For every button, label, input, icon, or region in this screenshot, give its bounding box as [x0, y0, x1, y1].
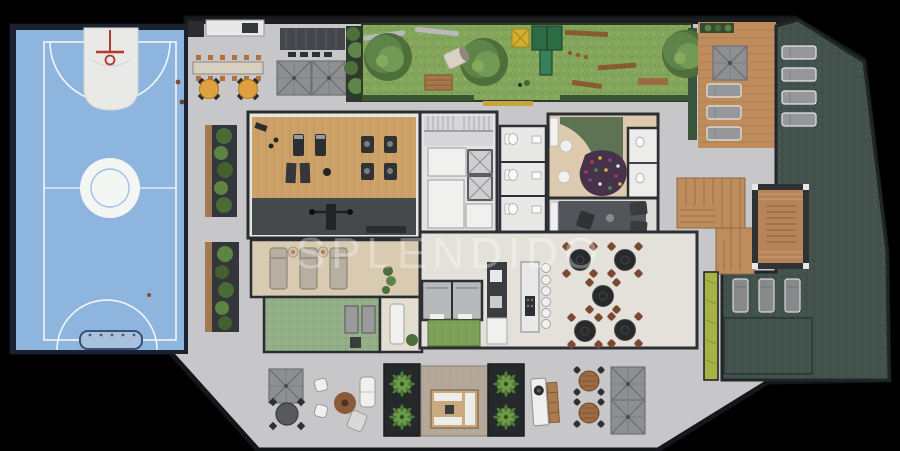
basketball-court — [10, 24, 188, 354]
armchair — [314, 404, 329, 419]
cafe-table — [237, 78, 259, 100]
tree — [460, 38, 508, 86]
sauna — [422, 281, 482, 320]
coffee-station — [188, 21, 204, 37]
indoor-garden-patch — [428, 320, 480, 346]
pouf — [558, 171, 570, 183]
palm-planter — [384, 364, 420, 436]
sun-lounger — [782, 46, 816, 59]
building-core — [420, 112, 497, 232]
floorplan-image: SPLENDIDO — [0, 0, 900, 451]
watermark-text: SPLENDIDO — [296, 229, 604, 278]
palm-tree — [493, 404, 519, 430]
terrace-umbrella — [611, 367, 645, 401]
deck-umbrella — [713, 46, 747, 80]
garden-mat — [345, 306, 358, 333]
cafe-table — [198, 78, 220, 100]
tree — [364, 33, 412, 81]
terrace-umbrella — [269, 369, 303, 403]
restrooms — [500, 126, 546, 232]
picnic-table — [425, 75, 452, 90]
slide — [540, 50, 552, 75]
sun-lounger — [707, 127, 741, 140]
entry-strip — [483, 101, 533, 106]
armchair — [314, 378, 329, 393]
sun-lounger — [707, 84, 741, 97]
stone-lounger — [759, 279, 774, 312]
communal-table — [193, 62, 263, 74]
bbq-grill — [530, 377, 559, 426]
sun-lounger — [782, 68, 816, 81]
center-circle — [80, 158, 140, 218]
gym — [248, 112, 420, 238]
stone-lounger — [785, 279, 800, 312]
sun-lounger — [707, 106, 741, 119]
sun-lounger — [782, 91, 816, 104]
exercise-mat — [300, 163, 311, 183]
palm-planter — [488, 364, 524, 436]
garden-mat — [362, 306, 375, 333]
medicine-ball — [323, 168, 331, 176]
futsal-goal — [80, 331, 142, 349]
sun-lounger — [782, 113, 816, 126]
terrace-umbrella — [611, 400, 645, 434]
kids-playroom — [548, 114, 658, 198]
palm-tree — [389, 404, 415, 430]
terrace-umbrella — [312, 61, 346, 95]
sun-deck — [698, 22, 776, 148]
stone-lounger — [733, 279, 748, 312]
massage-table — [390, 304, 404, 344]
floorplan-svg: SPLENDIDO — [0, 0, 900, 451]
stairs — [424, 116, 493, 146]
pouf — [560, 140, 572, 152]
fire-pit-lounge — [421, 366, 488, 436]
terrace-umbrella — [277, 61, 311, 95]
fire-table — [445, 405, 454, 414]
sofa — [629, 201, 647, 216]
exercise-mat — [285, 163, 296, 183]
palm-tree — [389, 371, 415, 397]
gazebo — [752, 184, 809, 269]
palm-tree — [493, 371, 519, 397]
